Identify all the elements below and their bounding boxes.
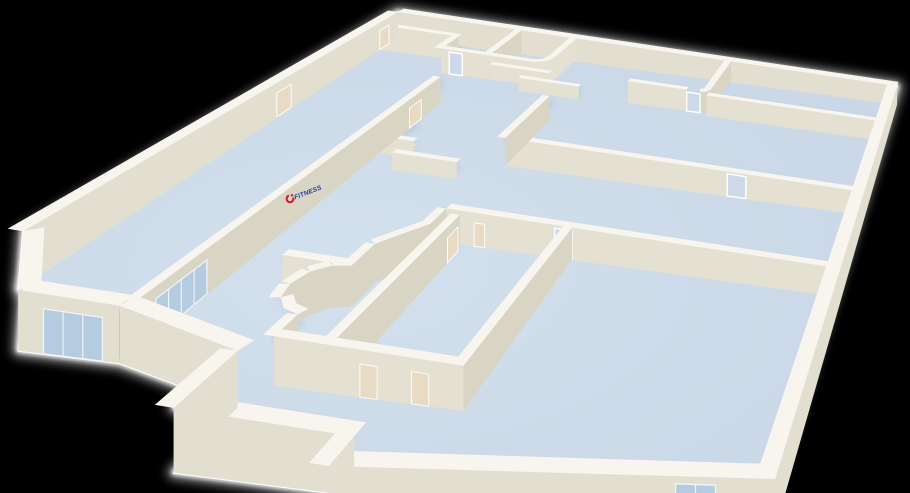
glass-door: [676, 484, 716, 493]
door: [474, 223, 485, 248]
door: [412, 372, 429, 407]
floorplan-3d-view[interactable]: FITNESS: [0, 0, 910, 493]
doorway-gap: [449, 52, 462, 76]
door-panel: [474, 223, 485, 248]
door-panel: [412, 372, 429, 407]
doorway-opening: [727, 174, 746, 199]
door: [360, 364, 377, 400]
door-panel: [360, 364, 377, 400]
doorway-opening: [687, 92, 700, 113]
doorway-opening: [449, 52, 462, 76]
window: [44, 309, 103, 361]
floorplan-scene: FITNESS: [0, 0, 910, 493]
doorway-gap: [727, 174, 746, 199]
doorway-gap: [687, 92, 700, 113]
window-glass: [44, 309, 103, 361]
